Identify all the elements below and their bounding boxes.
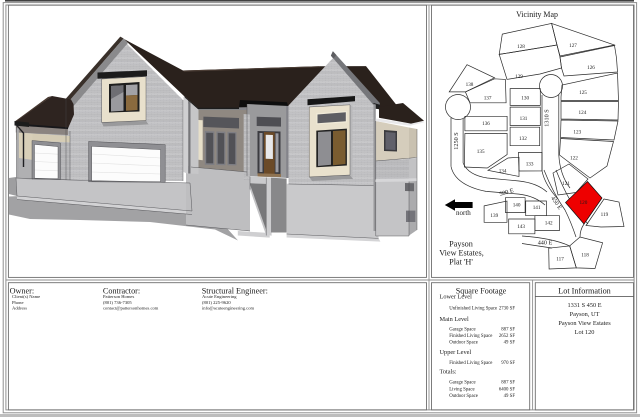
svg-text:Upper Level: Upper Level: [440, 349, 472, 356]
svg-text:Totals:: Totals:: [440, 368, 457, 375]
svg-text:Garage Space: Garage Space: [449, 328, 476, 333]
svg-text:128: 128: [517, 44, 525, 50]
svg-text:Lot 120: Lot 120: [575, 329, 595, 336]
svg-text:6400 SF: 6400 SF: [499, 388, 515, 393]
svg-text:887 SF: 887 SF: [501, 381, 515, 386]
svg-text:140: 140: [513, 202, 521, 208]
svg-text:Lower Level: Lower Level: [440, 293, 473, 300]
svg-text:120: 120: [580, 200, 588, 206]
svg-text:119: 119: [601, 212, 609, 218]
svg-text:141: 141: [533, 205, 541, 211]
svg-text:125: 125: [579, 90, 587, 96]
svg-text:(801) 225-9620: (801) 225-9620: [202, 300, 231, 305]
svg-text:(801) 736-7305: (801) 736-7305: [103, 300, 132, 305]
svg-text:Acute Engineering: Acute Engineering: [202, 294, 237, 299]
svg-text:122: 122: [570, 156, 578, 162]
svg-text:1310 S: 1310 S: [544, 109, 551, 127]
svg-text:970 SF: 970 SF: [501, 361, 515, 366]
svg-text:contact@pattersonhomes.com: contact@pattersonhomes.com: [103, 305, 159, 310]
svg-text:Lot Information: Lot Information: [558, 286, 611, 295]
svg-text:Main Level: Main Level: [440, 316, 469, 323]
svg-text:440 E: 440 E: [538, 239, 553, 246]
svg-text:View Estates,: View Estates,: [439, 249, 484, 258]
svg-text:139: 139: [490, 213, 498, 219]
svg-text:137: 137: [484, 96, 492, 102]
svg-text:Payson View Estates: Payson View Estates: [558, 320, 611, 327]
svg-text:136: 136: [482, 121, 490, 127]
svg-text:Living Space: Living Space: [449, 388, 474, 393]
svg-text:Unfinished Living Space: Unfinished Living Space: [449, 306, 497, 311]
svg-text:117: 117: [556, 257, 564, 263]
svg-text:131: 131: [520, 116, 528, 122]
svg-text:49 SF: 49 SF: [504, 341, 516, 346]
svg-text:Vicinity Map: Vicinity Map: [516, 10, 558, 19]
svg-text:138: 138: [466, 82, 474, 88]
svg-text:Address: Address: [12, 305, 27, 310]
svg-text:126: 126: [587, 65, 595, 71]
svg-text:124: 124: [579, 110, 587, 116]
svg-text:129: 129: [515, 74, 523, 80]
svg-text:134: 134: [499, 168, 507, 174]
svg-text:Payson: Payson: [449, 239, 473, 248]
svg-text:127: 127: [569, 43, 577, 49]
svg-text:info@acuteengineering.com: info@acuteengineering.com: [202, 305, 254, 310]
svg-text:132: 132: [519, 136, 527, 142]
svg-text:Patterson Homes: Patterson Homes: [103, 294, 134, 299]
svg-text:142: 142: [545, 220, 553, 226]
svg-text:1331 S 450 E: 1331 S 450 E: [567, 302, 601, 309]
svg-text:Finished Living Space: Finished Living Space: [449, 361, 492, 366]
svg-text:Finished Living Space: Finished Living Space: [449, 334, 492, 339]
svg-text:143: 143: [517, 224, 525, 230]
svg-text:north: north: [456, 209, 471, 217]
svg-text:Plat 'H': Plat 'H': [449, 258, 473, 267]
svg-text:135: 135: [477, 149, 485, 155]
svg-text:Outdoor Space: Outdoor Space: [449, 394, 478, 399]
svg-text:Outdoor Space: Outdoor Space: [449, 341, 478, 346]
svg-text:121: 121: [562, 181, 570, 187]
svg-text:130: 130: [521, 96, 529, 102]
svg-text:Client(s) Name: Client(s) Name: [12, 294, 40, 299]
svg-text:2652 SF: 2652 SF: [499, 334, 515, 339]
svg-text:2730 SF: 2730 SF: [499, 306, 515, 311]
svg-text:1250 S: 1250 S: [453, 132, 460, 150]
svg-text:Payson, UT: Payson, UT: [570, 311, 600, 318]
svg-text:133: 133: [526, 162, 534, 168]
svg-text:Phone: Phone: [12, 300, 23, 305]
svg-text:123: 123: [573, 129, 581, 135]
svg-text:Garage Space: Garage Space: [449, 381, 476, 386]
svg-text:49 SF: 49 SF: [504, 394, 516, 399]
svg-text:887 SF: 887 SF: [501, 328, 515, 333]
svg-text:118: 118: [581, 253, 589, 259]
